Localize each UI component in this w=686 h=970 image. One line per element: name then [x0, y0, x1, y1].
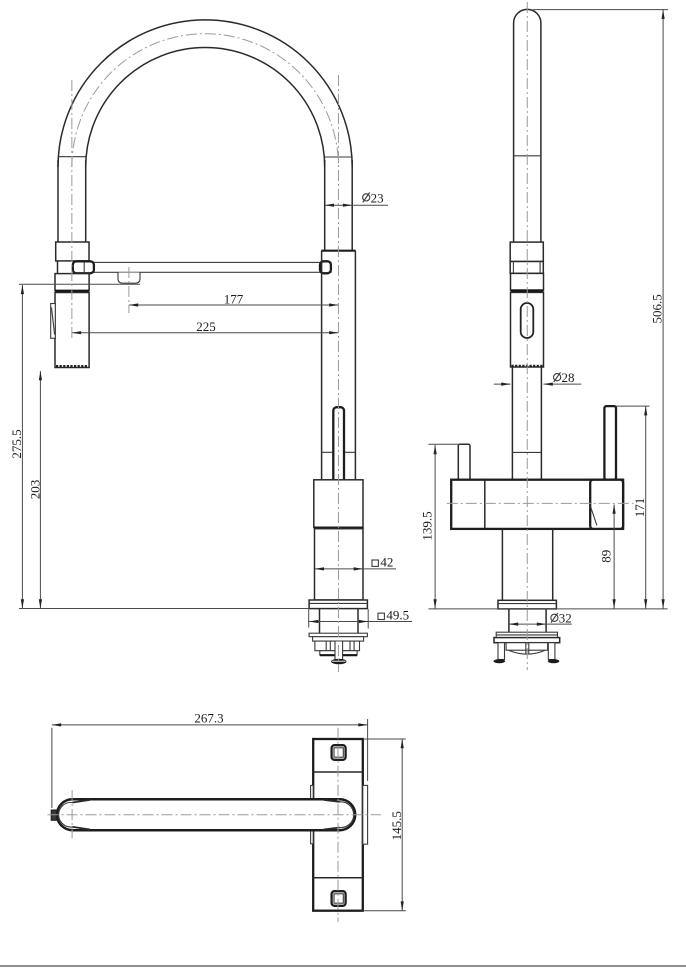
svg-text:28: 28: [562, 370, 575, 385]
svg-text:225: 225: [196, 319, 216, 334]
svg-text:177: 177: [224, 291, 244, 306]
svg-text:49.5: 49.5: [386, 608, 409, 623]
svg-text:506.5: 506.5: [650, 294, 665, 323]
svg-text:275.5: 275.5: [9, 429, 24, 458]
svg-text:203: 203: [28, 480, 43, 500]
svg-text:89: 89: [599, 550, 614, 563]
svg-text:139.5: 139.5: [420, 511, 435, 540]
svg-text:145.5: 145.5: [389, 811, 404, 840]
svg-text:23: 23: [371, 190, 384, 205]
svg-text:267.3: 267.3: [194, 711, 223, 726]
svg-text:171: 171: [632, 498, 647, 518]
svg-text:32: 32: [559, 611, 572, 626]
svg-text:42: 42: [380, 555, 393, 570]
